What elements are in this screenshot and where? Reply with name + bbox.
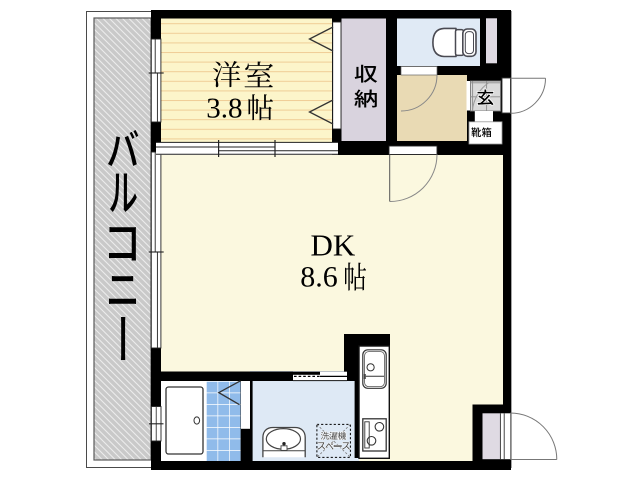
svg-text:8.6: 8.6	[300, 261, 338, 294]
svg-text:DK: DK	[311, 228, 356, 263]
svg-text:3.8: 3.8	[206, 92, 242, 124]
